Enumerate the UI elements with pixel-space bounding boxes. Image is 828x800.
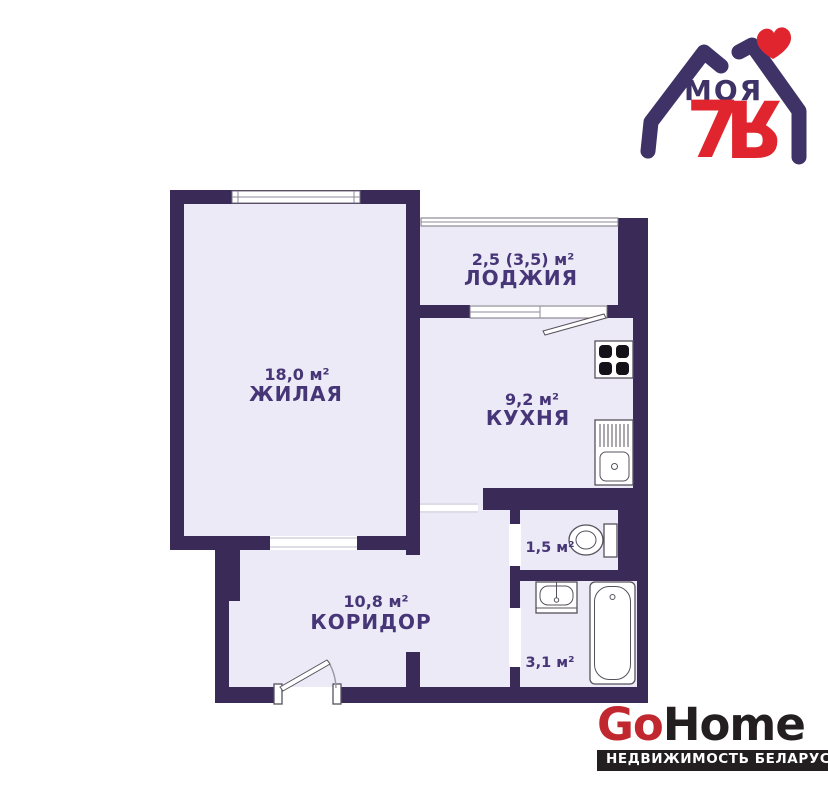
gohome-home: Home xyxy=(663,698,805,751)
gohome-logo: GoHome НЕДВИЖИМОСТЬ БЕЛАРУСИ xyxy=(597,702,828,771)
wall-corridor-left-block xyxy=(215,550,240,601)
gohome-wordmark: GoHome xyxy=(597,702,828,747)
wall-bath-left-stub-bottom xyxy=(510,667,520,691)
bathtub-icon xyxy=(590,582,635,684)
toilet-icon xyxy=(569,524,617,557)
entrance-door-opening xyxy=(282,687,333,703)
gohome-go: Go xyxy=(597,698,663,751)
corridor-area-label: 10,8 м² xyxy=(343,592,408,611)
wall-bathroom-right xyxy=(637,570,648,703)
wall-toilet-right xyxy=(618,505,648,577)
wall-living-bottom-left xyxy=(170,536,270,550)
floor-plan: 18,0 м² ЖИЛАЯ 2,5 (3,5) м² ЛОДЖИЯ 9,2 м²… xyxy=(0,0,828,800)
floorplan-page: 18,0 м² ЖИЛАЯ 2,5 (3,5) м² ЛОДЖИЯ 9,2 м²… xyxy=(0,0,828,800)
gohome-tagline: НЕДВИЖИМОСТЬ БЕЛАРУСИ xyxy=(597,750,828,771)
entrance-door-jamb-right xyxy=(333,684,341,704)
bathroom-area-label: 3,1 м² xyxy=(526,655,575,671)
brand-logo: МОЯ 7 Я xyxy=(648,27,799,176)
wall-loggia-kitchen-right xyxy=(607,305,618,318)
kitchen-sink-icon xyxy=(595,420,633,485)
living-name-label: ЖИЛАЯ xyxy=(249,382,343,406)
wall-loggia-kitchen-left xyxy=(420,305,470,318)
wall-living-left xyxy=(170,190,184,550)
wall-toilet-bath-divider xyxy=(510,570,637,581)
stove-icon xyxy=(595,341,633,378)
kitchen-name-label: КУХНЯ xyxy=(486,406,570,430)
brand-ya-flipped: Я xyxy=(725,82,785,172)
wall-living-right xyxy=(406,190,420,555)
wall-loggia-right xyxy=(618,218,648,318)
corridor-name-label: КОРИДОР xyxy=(310,610,431,634)
toilet-area-label: 1,5 м² xyxy=(526,540,575,556)
wall-bath-left-stub-top xyxy=(510,581,520,608)
wall-toilet-left-stub-top xyxy=(510,510,520,524)
bathroom-door-opening xyxy=(509,608,521,667)
wall-corridor-stub xyxy=(406,652,420,691)
washbasin-icon xyxy=(536,582,577,613)
wall-kitchen-right xyxy=(633,305,648,505)
loggia-name-label: ЛОДЖИЯ xyxy=(464,266,578,290)
toilet-door-opening xyxy=(509,524,521,566)
